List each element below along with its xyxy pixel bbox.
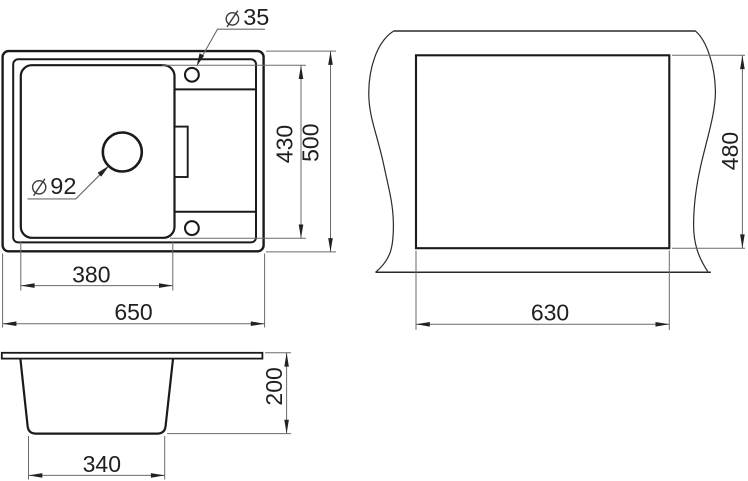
svg-text:630: 630 [531,299,569,325]
svg-text:430: 430 [271,125,297,163]
svg-text:380: 380 [72,261,110,287]
svg-text:92: 92 [50,173,76,199]
svg-text:650: 650 [114,299,152,325]
svg-text:35: 35 [243,4,269,30]
svg-text:340: 340 [83,451,121,477]
svg-text:500: 500 [297,124,323,162]
svg-text:200: 200 [261,367,287,405]
svg-text:480: 480 [717,132,743,170]
